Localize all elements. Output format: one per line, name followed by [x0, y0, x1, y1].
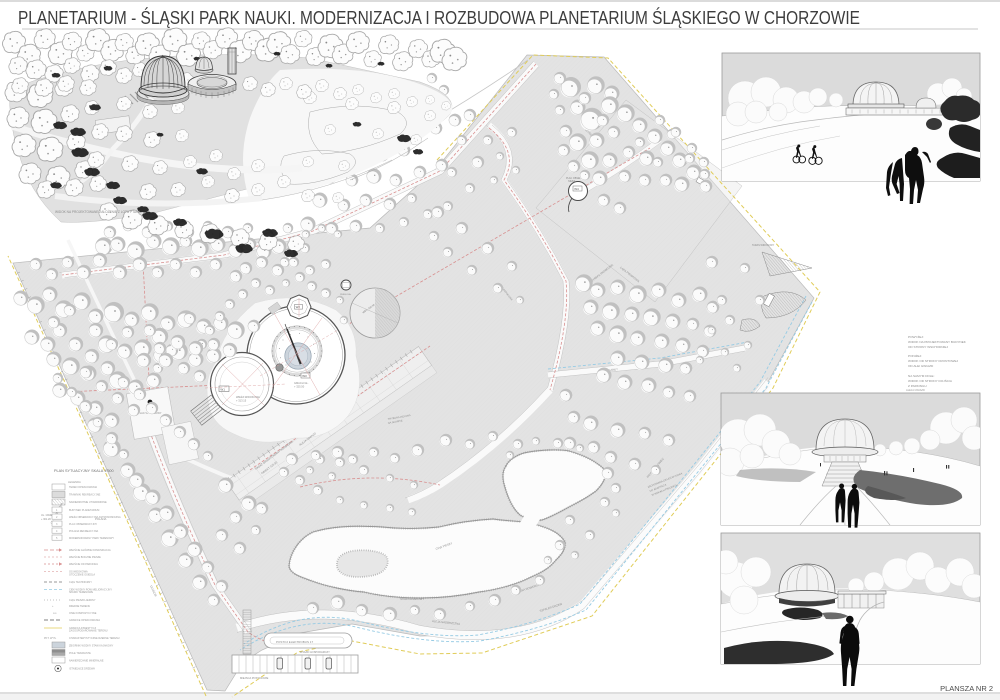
- svg-text:WEJŚCIE OD PARKINGU: WEJŚCIE OD PARKINGU: [69, 563, 98, 566]
- svg-text:WIDOK OD STRONY DOJŚCIA: WIDOK OD STRONY DOJŚCIA: [908, 378, 953, 383]
- svg-text:+ 301.20: + 301.20: [41, 518, 51, 521]
- svg-text:+ 325.50: + 325.50: [294, 384, 305, 388]
- svg-text:NA SAMYM DOLE:: NA SAMYM DOLE:: [908, 374, 935, 378]
- svg-text:OD STRONY WSCHODNIEJ: OD STRONY WSCHODNIEJ: [908, 345, 948, 349]
- svg-text:WIDOK NA PROJEKTOWANE ZAŁOŻENI: WIDOK NA PROJEKTOWANE ZAŁOŻENIE Z LOTU P…: [55, 209, 141, 214]
- svg-text:CHARAKTERYSTYCZNE RZEDNE TEREN: CHARAKTERYSTYCZNE RZEDNE TERENU: [69, 637, 120, 640]
- svg-text:PLANETARIUM - ŚLĄSKI PARK NAUK: PLANETARIUM - ŚLĄSKI PARK NAUKI. MODERNI…: [18, 7, 860, 28]
- svg-text:CIĄG PIESZO-JEZDNY: CIĄG PIESZO-JEZDNY: [69, 599, 96, 602]
- svg-text:WIDOK NA PROJEKTOWANY BUDYNEK: WIDOK NA PROJEKTOWANY BUDYNEK: [908, 340, 967, 344]
- svg-text:CIĄG TECHNICZNY: CIĄG TECHNICZNY: [69, 581, 92, 584]
- svg-text:WIEŻA OBSERWACYJNA ASTRONOMICZ: WIEŻA OBSERWACYJNA ASTRONOMICZNA: [69, 516, 121, 519]
- svg-text:+ 313.15: + 313.15: [236, 399, 247, 403]
- svg-text:GRANICE OPRACOWANIA: GRANICE OPRACOWANIA: [69, 619, 100, 622]
- svg-text:OTOCZENIE OSIEDLA: OTOCZENIE OSIEDLA: [69, 574, 95, 577]
- svg-text:ZAGOSPODAROWANIE TERENU: ZAGOSPODAROWANIE TERENU: [69, 630, 108, 633]
- svg-text:W4: W4: [574, 187, 579, 191]
- svg-text:WEJŚCIE GŁÓWNE KOMUNIKACJA: WEJŚCIE GŁÓWNE KOMUNIKACJA: [69, 549, 111, 552]
- svg-text:ZBIORNIK WODNY STAW KAJAKOWY: ZBIORNIK WODNY STAW KAJAKOWY: [69, 645, 114, 648]
- svg-text:MIEJSCA POSTOJOWE: MIEJSCA POSTOJOWE: [240, 676, 269, 680]
- svg-text:NIEBA: NIEBA: [568, 180, 576, 183]
- svg-text:ISTNIEJĄCE DRZEWA: ISTNIEJĄCE DRZEWA: [69, 668, 95, 671]
- svg-text:RZEDNE TERENU: RZEDNE TERENU: [69, 605, 90, 608]
- svg-text:PERGOLA: PERGOLA: [340, 293, 351, 296]
- svg-text:ALEJA GWIAZD: ALEJA GWIAZD: [906, 388, 925, 392]
- svg-text:W1: W1: [220, 388, 225, 392]
- svg-text:POLANA REKREACYJNA: POLANA REKREACYJNA: [69, 530, 99, 533]
- svg-text:PLAC OBSERWACYJNY: PLAC OBSERWACYJNY: [69, 523, 97, 526]
- svg-text:WJAZD GOSPODARCZY: WJAZD GOSPODARCZY: [300, 650, 330, 654]
- svg-text:PONIŻEJ:: PONIŻEJ:: [908, 353, 922, 358]
- svg-text:NAWIERZCHNIE UTWARDZONE: NAWIERZCHNIE UTWARDZONE: [69, 501, 107, 504]
- svg-text:PLAN SYTUACYJNY SKALA 1:500: PLAN SYTUACYJNY SKALA 1:500: [54, 469, 114, 473]
- svg-text:POWYŻEJ:: POWYŻEJ:: [908, 334, 924, 339]
- svg-text:W3: W3: [302, 374, 307, 378]
- svg-text:TARAS WIDOKOWY: TARAS WIDOKOWY: [752, 244, 775, 247]
- svg-text:TRAWNIKI REKREACYJNE: TRAWNIKI REKREACYJNE: [69, 494, 101, 497]
- svg-text:Z PARKINGU: Z PARKINGU: [908, 384, 927, 388]
- svg-text:POLE TRAWIASTE: POLE TRAWIASTE: [69, 652, 91, 655]
- svg-text:GMACH GŁ.: GMACH GŁ.: [294, 381, 309, 385]
- svg-text:PLANSZA NR 2: PLANSZA NR 2: [940, 684, 993, 693]
- svg-text:LEGENDA: LEGENDA: [68, 480, 81, 484]
- svg-text:WEJŚCIE BOCZNE PIESZE: WEJŚCIE BOCZNE PIESZE: [69, 556, 101, 559]
- svg-text:OSIE KOMPOZYCYJNE: OSIE KOMPOZYCYJNE: [69, 612, 97, 615]
- svg-text:NAWIERZCHNIE MINERALNE: NAWIERZCHNIE MINERALNE: [69, 659, 104, 662]
- svg-text:POSTOJ ELEKTROBUS 17: POSTOJ ELEKTROBUS 17: [276, 640, 313, 644]
- svg-text:PKT. WYS.: PKT. WYS.: [44, 637, 57, 640]
- svg-text:W2: W2: [296, 305, 301, 309]
- svg-text:MODERNIZOWANY PARK TERENOWY: MODERNIZOWANY PARK TERENOWY: [69, 537, 114, 540]
- svg-text:WIDOK OD STRONY FRONTOWEJ: WIDOK OD STRONY FRONTOWEJ: [908, 359, 959, 363]
- svg-text:STAW KAJAKOWY: STAW KAJAKOWY: [400, 597, 424, 601]
- svg-text:OD ALEI GWIAZD: OD ALEI GWIAZD: [908, 364, 934, 368]
- svg-text:BUDYNEK PLANETARIUM: BUDYNEK PLANETARIUM: [69, 509, 99, 512]
- svg-text:TEREN OPRACOWANIA: TEREN OPRACOWANIA: [69, 486, 97, 489]
- svg-text:SPADKI TERENOWE: SPADKI TERENOWE: [69, 591, 93, 594]
